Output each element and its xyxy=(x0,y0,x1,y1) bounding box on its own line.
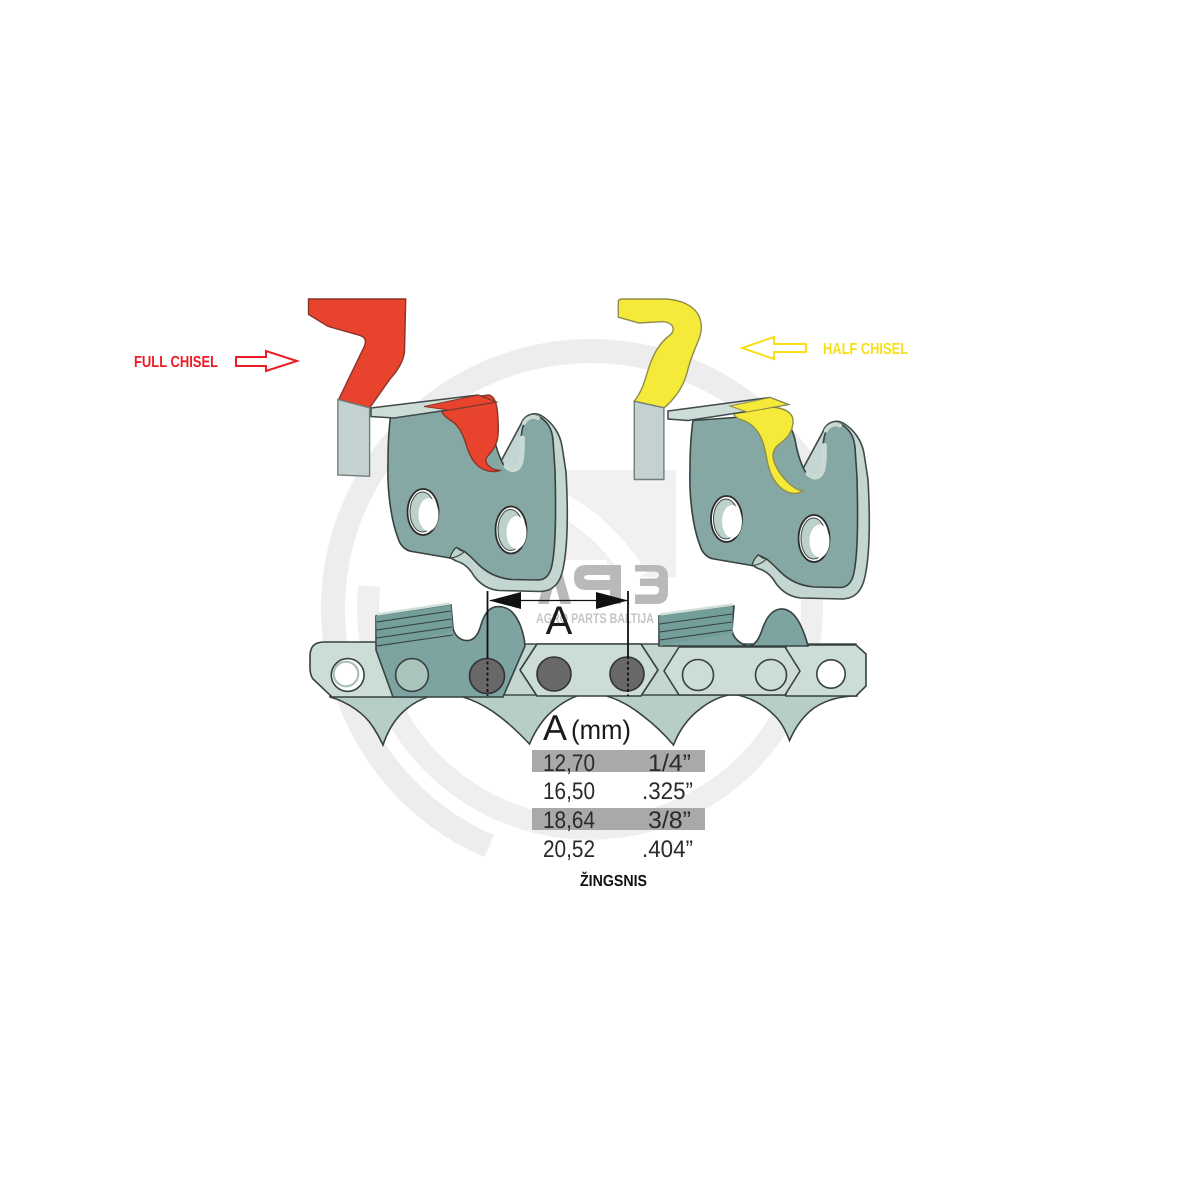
svg-text:.404”: .404” xyxy=(642,836,693,863)
svg-text:18,64: 18,64 xyxy=(543,807,595,834)
svg-text:(mm): (mm) xyxy=(571,715,631,745)
svg-text:.325”: .325” xyxy=(642,778,693,805)
svg-text:FULL CHISEL: FULL CHISEL xyxy=(134,354,218,371)
svg-text:1/4”: 1/4” xyxy=(648,750,691,777)
svg-text:16,50: 16,50 xyxy=(543,778,595,805)
svg-text:12,70: 12,70 xyxy=(543,750,595,777)
svg-text:20,52: 20,52 xyxy=(543,836,595,863)
svg-text:3/8”: 3/8” xyxy=(648,807,691,834)
svg-text:A: A xyxy=(543,707,567,748)
svg-text:HALF CHISEL: HALF CHISEL xyxy=(823,341,908,358)
svg-text:ŽINGSNIS: ŽINGSNIS xyxy=(580,871,647,890)
svg-text:A: A xyxy=(546,599,573,643)
